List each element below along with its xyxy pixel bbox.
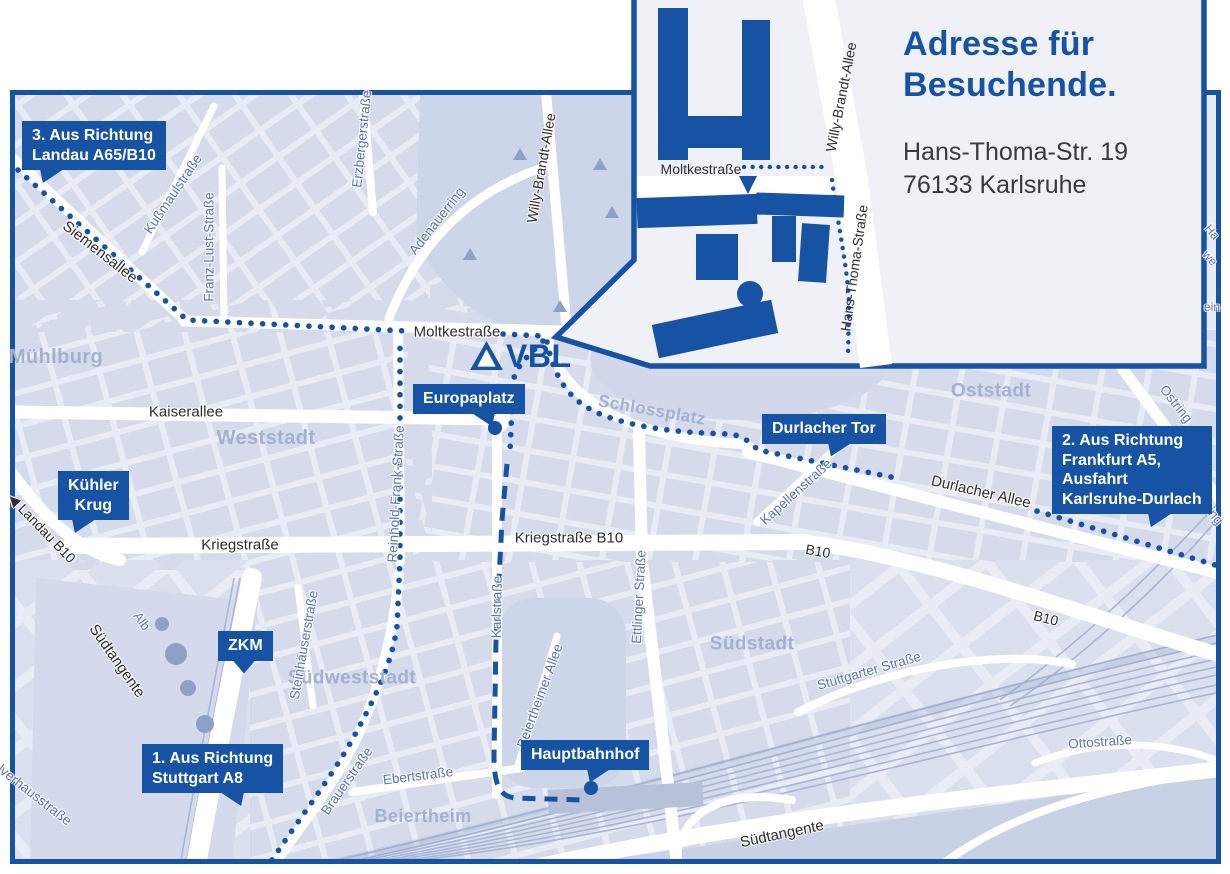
street-label: Durlacher Allee bbox=[930, 473, 1032, 510]
callout-landau-line: Landau A65/B10 bbox=[32, 146, 156, 166]
inset-vbl-buildings bbox=[637, 8, 845, 358]
callout-kuehler-krug-line: Krug bbox=[68, 496, 119, 516]
street-label: Ostring bbox=[1157, 383, 1194, 426]
route-hauptbahnhof-dashed bbox=[494, 464, 584, 800]
callout-hauptbahnhof-pointer-icon bbox=[587, 769, 611, 783]
route-3-moltkestrasse-east bbox=[503, 334, 543, 336]
inset-title: Adresse für Besuchende. bbox=[903, 24, 1203, 106]
inset-address-street: Hans-Thoma-Str. 19 bbox=[903, 136, 1203, 169]
inset-text-block: Adresse für Besuchende. Hans-Thoma-Str. … bbox=[903, 24, 1203, 202]
street-label: ◀ Landau B10 bbox=[6, 491, 79, 566]
inset-streets bbox=[637, 0, 876, 366]
street-label: Moltkestraße bbox=[414, 325, 501, 340]
street-label: Reinhold-Frank-Straße bbox=[386, 425, 407, 563]
street-label: Ettlinger Straße bbox=[630, 550, 648, 644]
europaplatz-junction bbox=[484, 407, 510, 433]
inset-title-line2: Besuchende. bbox=[903, 65, 1203, 106]
callout-landau-pointer-icon bbox=[40, 169, 64, 183]
park-trees bbox=[155, 120, 683, 733]
street-label: we bbox=[1200, 248, 1219, 267]
street-label: Ottostraße bbox=[1068, 733, 1133, 751]
south-area bbox=[560, 772, 1230, 866]
callout-frankfurt-pointer-icon bbox=[1148, 513, 1172, 527]
vbl-logo: VBL bbox=[470, 341, 572, 370]
street-label: Erzbergerstraße bbox=[350, 90, 374, 188]
street-label: Kapellenstraße bbox=[758, 457, 835, 528]
map-background bbox=[12, 92, 1220, 862]
street-label: Kußmaulstraße bbox=[142, 152, 205, 236]
street-label: Südtangente bbox=[86, 622, 147, 700]
vbl-logo-text: VBL bbox=[506, 343, 572, 370]
callout-kuehler-krug: KühlerKrug bbox=[58, 471, 129, 520]
hauptbahnhof-building bbox=[547, 782, 703, 814]
alb-green-area bbox=[30, 578, 258, 866]
callout-frankfurt-line: Ausfahrt bbox=[1062, 470, 1202, 490]
railway-tracks bbox=[180, 492, 1230, 866]
route-2-durlacher-allee bbox=[1037, 511, 1225, 568]
street-label: Ebertstraße bbox=[382, 765, 454, 787]
district-label: Weststadt bbox=[217, 428, 316, 448]
callout-kuehler-krug-pointer-icon bbox=[72, 519, 96, 533]
callout-stuttgart-pointer-icon bbox=[220, 792, 244, 806]
callout-europaplatz-marker bbox=[488, 421, 502, 435]
street-label: Franz-Lust-Straße bbox=[202, 192, 216, 302]
street-label: Adenauerring bbox=[407, 185, 468, 257]
map-terrain bbox=[8, 92, 1230, 866]
street-label: Alb bbox=[131, 610, 152, 633]
callout-landau: 3. Aus RichtungLandau A65/B10 bbox=[22, 121, 166, 170]
street-label: Pulverhausstraße bbox=[0, 752, 74, 828]
route-1-stuttgart bbox=[272, 344, 400, 860]
street-label: Steinhäuserstraße bbox=[288, 590, 320, 701]
callout-hauptbahnhof-line: Hauptbahnhof bbox=[531, 745, 639, 765]
callout-frankfurt-line: Karlsruhe-Durlach bbox=[1062, 490, 1202, 510]
route-inset-hans-thoma bbox=[832, 180, 849, 358]
street-label: Kriegstraße B10 bbox=[515, 531, 623, 546]
street-label: Willy-Brandt-Allee bbox=[524, 112, 557, 224]
inset-entrance-arrow-icon bbox=[739, 176, 757, 194]
callout-zkm-line: ZKM bbox=[228, 636, 263, 656]
district-label: Südstadt bbox=[710, 635, 794, 654]
callout-stuttgart-line: 1. Aus Richtung bbox=[152, 749, 273, 769]
callout-stuttgart-line: Stuttgart A8 bbox=[152, 769, 273, 789]
callout-durlacher-tor-pointer-icon bbox=[828, 443, 852, 457]
inset-street-label: Hans-Thoma-Straße bbox=[838, 204, 870, 332]
street-label: B10 bbox=[805, 542, 832, 560]
district-label: Oststadt bbox=[951, 382, 1031, 401]
visitor-map-page: MühlburgWeststadtSüdweststadtBeiertheimS… bbox=[0, 0, 1230, 874]
callout-hauptbahnhof: Hauptbahnhof bbox=[521, 740, 649, 770]
street-label: Karlstraße bbox=[490, 576, 505, 639]
callout-kuehler-krug-line: Kühler bbox=[68, 476, 119, 496]
inset-street-label: Moltkestraße bbox=[661, 162, 742, 176]
inset-address-city: 76133 Karlsruhe bbox=[903, 169, 1203, 202]
callout-europaplatz: Europaplatz bbox=[413, 384, 525, 414]
callout-hauptbahnhof-marker bbox=[584, 781, 598, 795]
map-border bbox=[13, 93, 1219, 862]
callout-frankfurt-line: Frankfurt A5, bbox=[1062, 451, 1202, 471]
district-label: Beiertheim bbox=[374, 807, 471, 825]
stadtgarten-park bbox=[498, 598, 626, 788]
callout-frankfurt: 2. Aus RichtungFrankfurt A5,AusfahrtKarl… bbox=[1052, 426, 1212, 514]
street-label: Siemensallee bbox=[60, 218, 140, 285]
callout-frankfurt-line: 2. Aus Richtung bbox=[1062, 431, 1202, 451]
street-label: Ostring bbox=[1188, 485, 1225, 528]
callout-durlacher-tor-line: Durlacher Tor bbox=[772, 419, 876, 439]
district-label: Schlossplatz bbox=[597, 392, 707, 428]
callout-europaplatz-line: Europaplatz bbox=[423, 389, 515, 409]
schlossgarten-park bbox=[416, 92, 796, 338]
callout-zkm: ZKM bbox=[218, 631, 273, 661]
road-network bbox=[8, 92, 1230, 866]
callout-durlacher-tor: Durlacher Tor bbox=[762, 414, 886, 444]
street-label: Südtangente bbox=[739, 818, 825, 850]
schlossplatz-area bbox=[590, 300, 890, 420]
inset-street-label: Willy-Brandt-Allee bbox=[824, 41, 859, 153]
callout-europaplatz-pointer-icon bbox=[471, 413, 495, 427]
vbl-triangle-icon bbox=[470, 341, 503, 370]
street-label: ein bbox=[1204, 301, 1220, 313]
street-label: B10 bbox=[1032, 608, 1060, 628]
district-label: Mühlburg bbox=[9, 347, 103, 367]
callout-zkm-pointer-icon bbox=[232, 660, 256, 674]
street-label: Kriegstraße bbox=[201, 538, 279, 553]
route-2-schlossplatz-arc bbox=[547, 342, 896, 478]
callout-stuttgart: 1. Aus RichtungStuttgart A8 bbox=[142, 744, 283, 793]
street-label: Ha bbox=[1202, 222, 1221, 241]
callout-landau-line: 3. Aus Richtung bbox=[32, 126, 156, 146]
route-3-siemensallee bbox=[18, 170, 406, 331]
inset-address: Hans-Thoma-Str. 19 76133 Karlsruhe bbox=[903, 136, 1203, 202]
district-label: Südweststadt bbox=[288, 669, 416, 688]
inset-title-line1: Adresse für bbox=[903, 24, 1203, 65]
street-label: Kaiserallee bbox=[149, 405, 223, 420]
street-label: Brauerstraße bbox=[319, 745, 375, 817]
street-label: Stuttgarter Straße bbox=[816, 650, 923, 693]
street-label: Beiertheimer Allee bbox=[515, 642, 565, 750]
